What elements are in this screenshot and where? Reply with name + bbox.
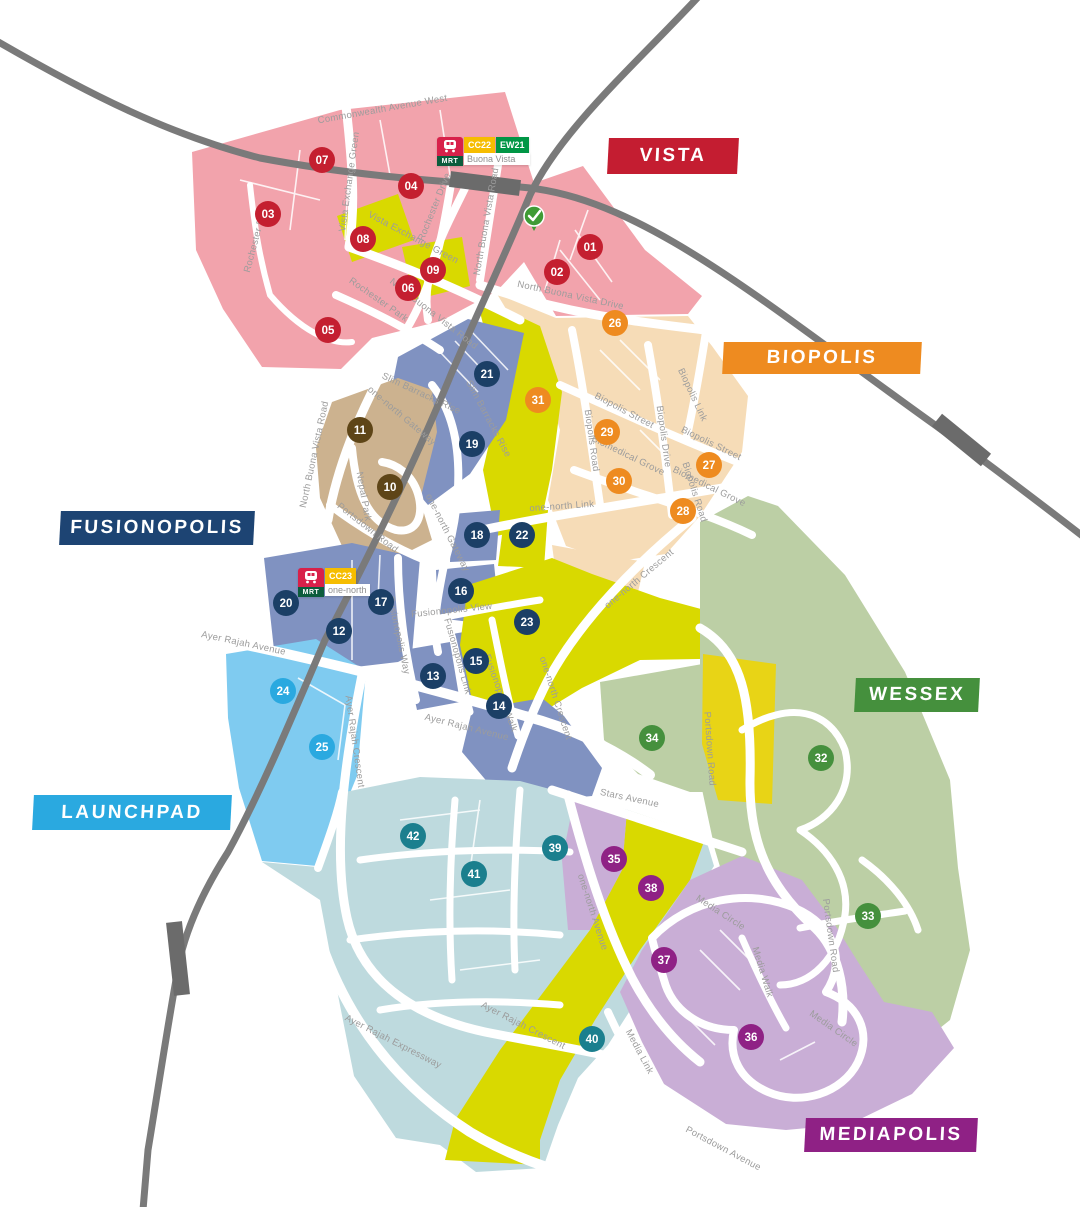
map-marker-30: 30 — [606, 468, 632, 494]
map-marker-20: 20 — [273, 590, 299, 616]
mrt-label: MRT — [437, 156, 463, 166]
mrt-line-code: EW21 — [496, 137, 529, 153]
map-marker-32: 32 — [808, 745, 834, 771]
marker-number: 10 — [384, 482, 397, 494]
railway-station-segment — [450, 179, 520, 188]
marker-number: 37 — [658, 955, 671, 967]
map-marker-26: 26 — [602, 310, 628, 336]
mrt-logo-icon: MRT — [437, 137, 463, 166]
map-marker-14: 14 — [486, 693, 512, 719]
district-banner-vista: VISTA — [607, 138, 739, 174]
marker-number: 31 — [532, 395, 545, 407]
mrt-label: MRT — [298, 587, 324, 597]
marker-number: 13 — [427, 671, 440, 683]
marker-number: 34 — [646, 733, 659, 745]
map-marker-37: 37 — [651, 947, 677, 973]
map-marker-38: 38 — [638, 875, 664, 901]
map-marker-22: 22 — [509, 522, 535, 548]
map-marker-11: 11 — [347, 417, 373, 443]
mrt-line-code: CC22 — [464, 137, 495, 153]
marker-number: 21 — [481, 369, 494, 381]
marker-number: 11 — [354, 425, 367, 437]
district-banner-fusionopolis: FUSIONOPOLIS — [59, 511, 255, 545]
marker-number: 08 — [357, 234, 370, 246]
marker-number: 12 — [333, 626, 346, 638]
map-marker-08: 08 — [350, 226, 376, 252]
map-marker-16: 16 — [448, 578, 474, 604]
marker-number: 41 — [468, 869, 481, 881]
map-marker-42: 42 — [400, 823, 426, 849]
mrt-station-badge: MRTCC22EW21Buona Vista — [437, 137, 530, 166]
map-marker-12: 12 — [326, 618, 352, 644]
marker-number: 20 — [280, 598, 293, 610]
district-banner-launchpad: LAUNCHPAD — [32, 795, 232, 830]
map-marker-39: 39 — [542, 835, 568, 861]
marker-number: 04 — [405, 181, 418, 193]
map-marker-35: 35 — [601, 846, 627, 872]
marker-number: 38 — [645, 883, 658, 895]
one-north-map: Commonwealth Avenue WestVista Exchange G… — [0, 0, 1080, 1207]
marker-number: 14 — [493, 701, 506, 713]
marker-number: 03 — [262, 209, 275, 221]
map-marker-19: 19 — [459, 431, 485, 457]
marker-number: 27 — [703, 460, 716, 472]
map-marker-05: 05 — [315, 317, 341, 343]
marker-number: 02 — [551, 267, 564, 279]
map-marker-18: 18 — [464, 522, 490, 548]
map-marker-21: 21 — [474, 361, 500, 387]
marker-number: 25 — [316, 742, 329, 754]
district-banner-wessex: WESSEX — [854, 678, 980, 712]
marker-number: 15 — [470, 656, 483, 668]
marker-number: 35 — [608, 854, 621, 866]
map-marker-13: 13 — [420, 663, 446, 689]
map-marker-41: 41 — [461, 861, 487, 887]
mrt-station-badge: MRTCC23one-north — [298, 568, 370, 597]
map-marker-34: 34 — [639, 725, 665, 751]
map-marker-33: 33 — [855, 903, 881, 929]
map-marker-31: 31 — [525, 387, 551, 413]
marker-number: 16 — [455, 586, 468, 598]
marker-number: 30 — [613, 476, 626, 488]
marker-number: 26 — [609, 318, 622, 330]
map-marker-09: 09 — [420, 257, 446, 283]
road-label: Portsdown Avenue — [684, 1124, 763, 1173]
marker-number: 01 — [584, 242, 597, 254]
marker-number: 40 — [586, 1034, 599, 1046]
marker-number: 24 — [277, 686, 290, 698]
map-marker-24: 24 — [270, 678, 296, 704]
map-marker-25: 25 — [309, 734, 335, 760]
mrt-station-name: one-north — [325, 584, 370, 596]
railway-station-segment — [937, 420, 986, 460]
map-marker-07: 07 — [309, 147, 335, 173]
map-marker-28: 28 — [670, 498, 696, 524]
marker-number: 28 — [677, 506, 690, 518]
marker-number: 05 — [322, 325, 335, 337]
marker-number: 06 — [402, 283, 415, 295]
map-marker-15: 15 — [463, 648, 489, 674]
map-canvas: Commonwealth Avenue WestVista Exchange G… — [0, 0, 1080, 1207]
map-marker-04: 04 — [398, 173, 424, 199]
map-marker-29: 29 — [594, 419, 620, 445]
marker-number: 36 — [745, 1032, 758, 1044]
marker-number: 32 — [815, 753, 828, 765]
marker-number: 23 — [521, 617, 534, 629]
mrt-station-name: Buona Vista — [464, 153, 530, 165]
railway-station-segment — [174, 922, 182, 995]
marker-number: 29 — [601, 427, 614, 439]
map-marker-10: 10 — [377, 474, 403, 500]
map-marker-40: 40 — [579, 1026, 605, 1052]
marker-number: 39 — [549, 843, 562, 855]
map-marker-02: 02 — [544, 259, 570, 285]
district-banner-biopolis: BIOPOLIS — [722, 342, 922, 374]
marker-number: 33 — [862, 911, 875, 923]
map-marker-36: 36 — [738, 1024, 764, 1050]
map-marker-03: 03 — [255, 201, 281, 227]
map-marker-06: 06 — [395, 275, 421, 301]
marker-number: 18 — [471, 530, 484, 542]
marker-number: 19 — [466, 439, 479, 451]
marker-number: 07 — [316, 155, 329, 167]
map-marker-27: 27 — [696, 452, 722, 478]
train-icon — [437, 137, 463, 156]
map-marker-17: 17 — [368, 589, 394, 615]
map-marker-23: 23 — [514, 609, 540, 635]
district-banner-mediapolis: MEDIAPOLIS — [804, 1118, 978, 1152]
train-icon — [298, 568, 324, 587]
marker-number: 22 — [516, 530, 529, 542]
mrt-logo-icon: MRT — [298, 568, 324, 597]
map-marker-01: 01 — [577, 234, 603, 260]
marker-number: 17 — [375, 597, 388, 609]
marker-number: 09 — [427, 265, 440, 277]
marker-number: 42 — [407, 831, 420, 843]
mrt-line-code: CC23 — [325, 568, 356, 584]
